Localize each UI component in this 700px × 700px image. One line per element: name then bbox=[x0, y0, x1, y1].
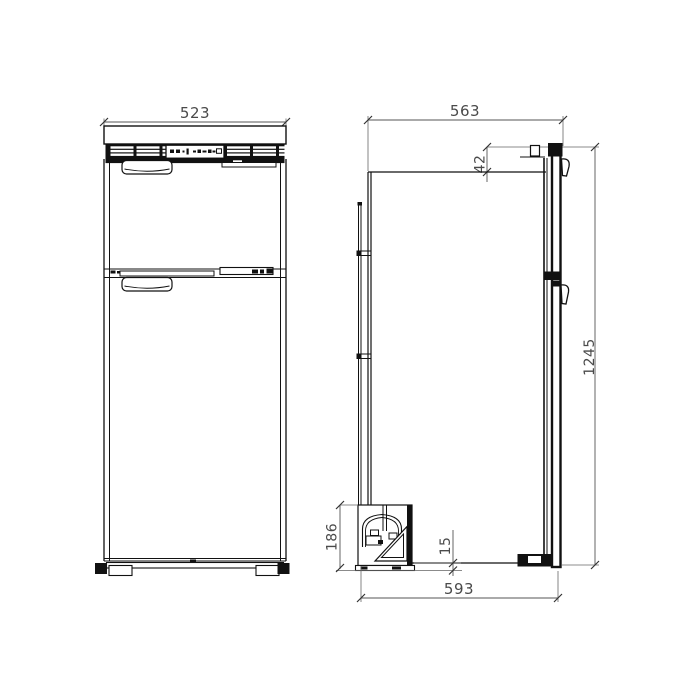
overall-depth-dimension: 593 bbox=[357, 566, 562, 602]
front-width-label: 523 bbox=[180, 104, 210, 122]
freezer-door-handle bbox=[122, 161, 172, 175]
drawing-svg: 523 bbox=[0, 0, 700, 700]
bottom-hinge bbox=[518, 554, 553, 567]
top-band bbox=[104, 126, 286, 144]
front-width-dimension: 523 bbox=[100, 104, 290, 127]
base-notch bbox=[190, 560, 196, 563]
bottom-clearance-label: 15 bbox=[438, 537, 454, 556]
side-cabinet-body bbox=[368, 158, 547, 563]
top-door-retainer bbox=[562, 159, 570, 176]
unit-height-label: 186 bbox=[325, 523, 341, 551]
middle-door-retainer bbox=[561, 285, 569, 304]
cabinet-sides bbox=[104, 159, 286, 561]
side-depth-label: 563 bbox=[450, 102, 480, 120]
overall-depth-label: 593 bbox=[444, 580, 474, 598]
side-door bbox=[552, 152, 561, 568]
bottom-clearance-dimension: 15 bbox=[414, 530, 461, 576]
fridge-door bbox=[122, 278, 172, 292]
freezer-door bbox=[104, 161, 286, 270]
cooling-unit bbox=[356, 505, 415, 571]
door-top-offset-label: 42 bbox=[473, 155, 489, 174]
side-depth-dimension: 563 bbox=[364, 102, 567, 171]
control-panel bbox=[166, 145, 224, 158]
overall-height-label: 1245 bbox=[582, 338, 598, 376]
overall-height-dimension: 1245 bbox=[562, 143, 599, 569]
refrigerator-dimension-drawing: 523 bbox=[0, 0, 700, 700]
hinge-cover-bar-top bbox=[222, 163, 276, 168]
front-view: 523 bbox=[95, 104, 290, 576]
door-top-offset-dimension: 42 bbox=[473, 143, 492, 182]
side-view: 563 42 1245 bbox=[325, 102, 600, 602]
front-base bbox=[95, 559, 290, 576]
fridge-door-handle bbox=[122, 278, 172, 292]
